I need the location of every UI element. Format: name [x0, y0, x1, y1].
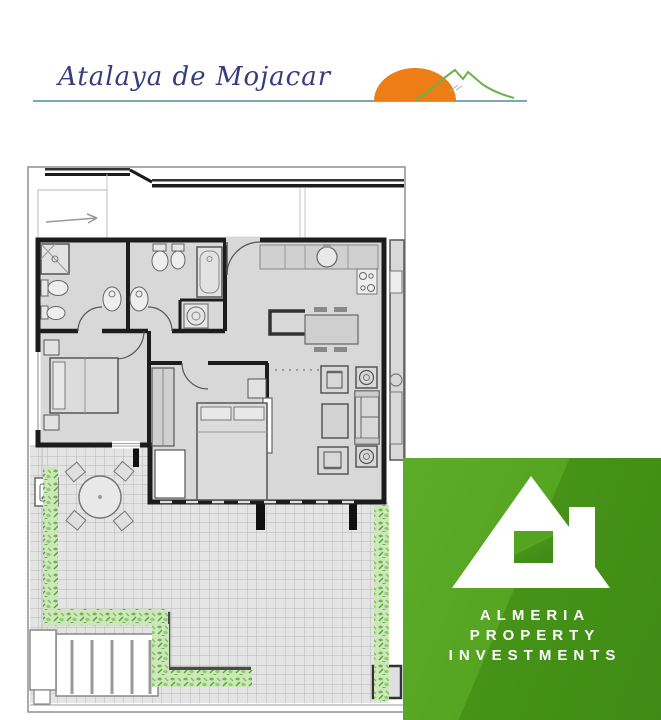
armchair-bottom [318, 447, 348, 474]
agency-badge: ALMERIA PROPERTY INVESTMENTS [403, 458, 661, 720]
agency-name: ALMERIA PROPERTY INVESTMENTS [403, 606, 661, 666]
armchair-top [321, 366, 348, 393]
sofa [355, 391, 379, 444]
agency-line-1: ALMERIA [409, 606, 661, 626]
house-window [514, 531, 553, 563]
house-logo [403, 458, 661, 720]
neighbor-unit [390, 240, 404, 460]
sink-icon [317, 247, 337, 267]
agency-line-3: INVESTMENTS [409, 646, 661, 666]
pergola [30, 630, 158, 704]
agency-line-2: PROPERTY [409, 626, 661, 646]
hob-icon [357, 269, 377, 294]
laundry-closet [184, 304, 208, 328]
listing-image: Atalaya de Mojacar [0, 0, 661, 720]
coffee-table [322, 404, 348, 438]
